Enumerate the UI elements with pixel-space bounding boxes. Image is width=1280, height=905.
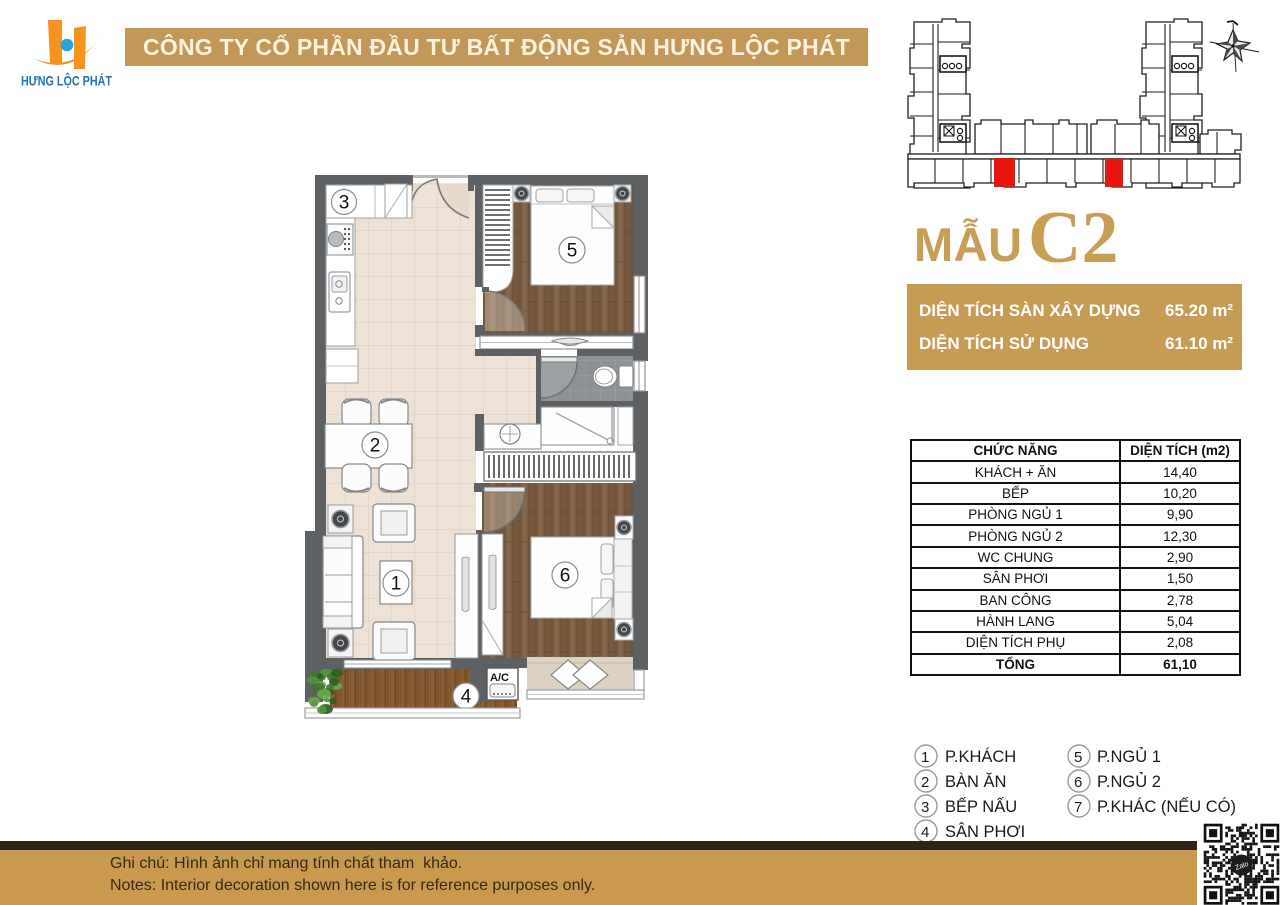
svg-text:3: 3 (339, 193, 350, 214)
svg-text:6: 6 (560, 566, 571, 587)
svg-text:A/C: A/C (490, 672, 509, 684)
svg-text:4: 4 (461, 687, 472, 708)
svg-text:2: 2 (370, 436, 381, 457)
svg-text:5: 5 (567, 241, 578, 262)
svg-text:1: 1 (391, 574, 402, 595)
